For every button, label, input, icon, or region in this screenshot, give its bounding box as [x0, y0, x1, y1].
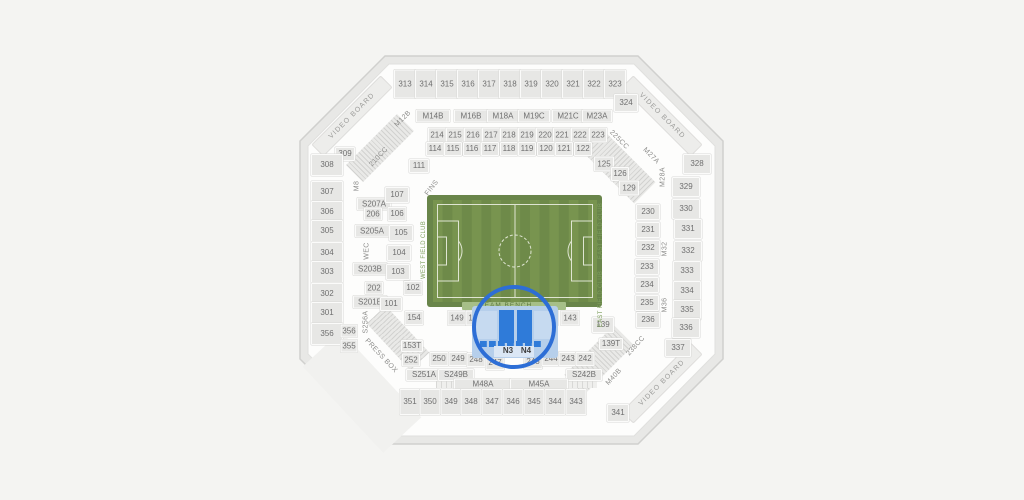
section-n3-block[interactable] — [499, 310, 514, 343]
section-n4-block[interactable] — [517, 310, 532, 343]
selection-overlay — [0, 0, 1024, 500]
selected-section-label[interactable]: N3 — [503, 347, 513, 355]
stadium-seating-map: 313 314 315 316 317 318 319 320 321 322 … — [0, 0, 1024, 500]
selected-area-left[interactable] — [476, 311, 497, 339]
selected-section-label[interactable]: N4 — [521, 347, 531, 355]
